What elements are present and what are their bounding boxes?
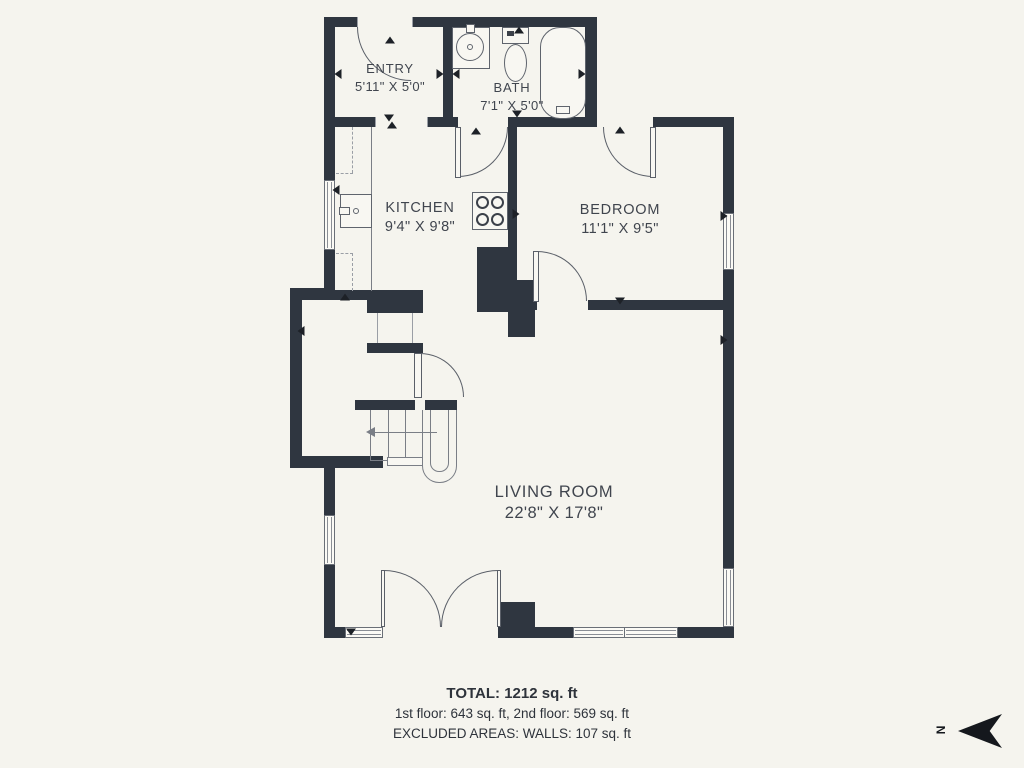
living-room-bottom-window-right (624, 627, 678, 638)
direction-marker-icon (335, 69, 342, 79)
cased-opening-jamb (377, 313, 378, 343)
direction-marker-icon (615, 298, 625, 305)
hall-door-leaf (414, 353, 422, 398)
room-label-living-room: LIVING ROOM 22'8" X 17'8" (474, 483, 634, 522)
direction-marker-icon (298, 326, 305, 336)
direction-marker-icon (513, 209, 520, 219)
wall-segment (723, 117, 734, 213)
room-label-kitchen: KITCHEN 9'4" X 9'8" (350, 200, 490, 235)
cased-opening-jamb (412, 313, 413, 343)
floor-plan: ENTRY 5'11" X 5'0" BATH 7'1" X 5'0" KITC… (0, 0, 1024, 768)
entry-doorway-opening (357, 17, 413, 27)
direction-marker-icon (721, 335, 728, 345)
stove-burner-icon (491, 196, 504, 209)
room-name: LIVING ROOM (474, 483, 634, 501)
direction-marker-icon (453, 69, 460, 79)
direction-marker-icon (721, 211, 728, 221)
direction-marker-icon (333, 185, 340, 195)
hall-door-arc (420, 353, 464, 397)
stair-direction-line (375, 432, 437, 433)
wall-segment (723, 270, 734, 568)
toilet-bowl-icon (504, 44, 527, 82)
living-room-bottom-window-left (573, 627, 625, 638)
entry-kitchen-opening (375, 117, 428, 127)
wall-segment (324, 468, 335, 515)
bedroom-bottom-door-arc (537, 251, 587, 301)
area-summary: TOTAL: 1212 sq. ft 1st floor: 643 sq. ft… (0, 683, 1024, 744)
wall-segment (508, 127, 517, 247)
direction-marker-icon (471, 128, 481, 135)
living-room-right-window (723, 568, 734, 627)
room-dimensions: 22'8" X 17'8" (474, 504, 634, 522)
bedroom-top-door-leaf (650, 127, 656, 178)
wall-segment (678, 627, 734, 638)
stove-burner-icon (491, 213, 504, 226)
wall-segment (508, 117, 597, 127)
direction-marker-icon (340, 294, 350, 301)
french-door-right-leaf (497, 570, 501, 627)
cabinet-dashed-line (352, 127, 353, 173)
direction-marker-icon (384, 115, 394, 122)
room-dimensions: 5'11" X 5'0" (320, 79, 460, 94)
wall-segment (428, 117, 458, 127)
wall-segment (324, 127, 335, 180)
stair-tread (405, 410, 406, 461)
direction-marker-icon (387, 122, 397, 129)
direction-marker-icon (514, 27, 524, 34)
wall-segment (425, 400, 457, 410)
wall-segment (335, 117, 375, 127)
cabinet-dashed-line (336, 253, 353, 254)
room-name: KITCHEN (350, 200, 490, 216)
room-dimensions: 11'1" X 9'5" (550, 221, 690, 237)
north-label: N (933, 726, 947, 735)
direction-marker-icon (512, 111, 522, 118)
room-label-bath: BATH 7'1" X 5'0" (442, 80, 582, 113)
cabinet-dashed-line (336, 173, 353, 174)
living-room-left-window (324, 515, 335, 565)
room-label-bedroom: BEDROOM 11'1" X 9'5" (550, 202, 690, 237)
room-dimensions: 9'4" X 9'8" (350, 219, 490, 235)
wall-segment (367, 343, 423, 353)
wall-segment (324, 250, 335, 291)
wall-segment (653, 117, 734, 127)
wall-segment (355, 400, 415, 410)
stair-curve-inner (430, 410, 449, 472)
kitchen-sink-faucet-icon (339, 207, 350, 215)
stair-direction-arrow-icon (366, 427, 375, 437)
french-door-right-arc (441, 570, 498, 627)
stair-tread (388, 410, 389, 461)
floor-areas-text: 1st floor: 643 sq. ft, 2nd floor: 569 sq… (0, 704, 1024, 724)
bedroom-window (723, 213, 734, 270)
wall-segment (413, 17, 597, 27)
direction-marker-icon (579, 69, 586, 79)
wall-segment (498, 627, 573, 638)
bath-sink-drain-icon (467, 44, 473, 50)
room-name: BATH (442, 80, 582, 95)
bedroom-bottom-door-leaf (533, 251, 539, 302)
stair-landing (387, 457, 423, 466)
direction-marker-icon (615, 127, 625, 134)
bath-door-leaf (455, 127, 461, 178)
room-name: BEDROOM (550, 202, 690, 218)
bath-sink-faucet-icon (466, 24, 475, 33)
wall-segment (290, 288, 302, 468)
direction-marker-icon (437, 69, 444, 79)
wall-segment (324, 627, 345, 638)
french-door-left-arc (384, 570, 441, 627)
chimney (498, 602, 535, 627)
bath-door-arc (458, 127, 508, 177)
wall-segment (588, 300, 734, 310)
excluded-areas-text: EXCLUDED AREAS: WALLS: 107 sq. ft (0, 724, 1024, 744)
direction-marker-icon (346, 629, 356, 636)
direction-marker-icon (385, 37, 395, 44)
wall-segment (367, 290, 423, 313)
bedroom-top-door-arc (603, 127, 653, 177)
cabinet-dashed-line (352, 253, 353, 291)
wall-segment (585, 17, 597, 127)
total-area-text: TOTAL: 1212 sq. ft (0, 683, 1024, 704)
french-door-left-leaf (381, 570, 385, 627)
toilet-flush-icon (507, 31, 514, 36)
